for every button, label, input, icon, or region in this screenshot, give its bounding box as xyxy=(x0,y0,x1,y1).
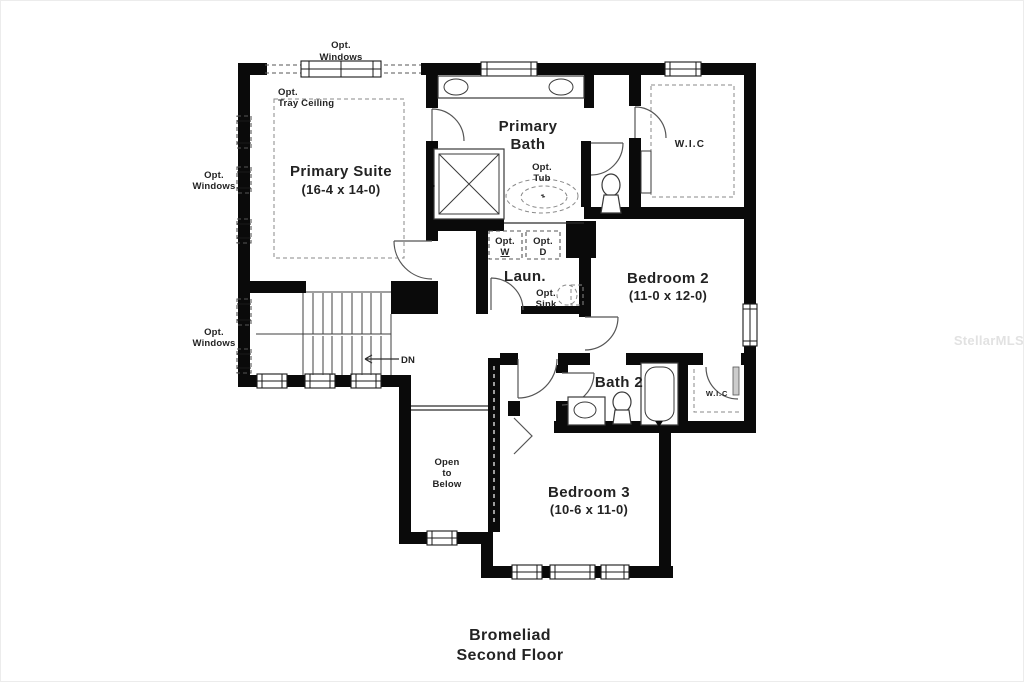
optional-tub xyxy=(506,179,578,213)
room-label-primary-bath: Primary xyxy=(499,118,558,135)
open-to-below-label: Below xyxy=(433,479,462,490)
opt-tub-label: Tub xyxy=(533,173,550,184)
window xyxy=(665,62,701,76)
watermark: StellarMLS xyxy=(954,333,1024,348)
shower xyxy=(427,149,504,219)
opt-tray-ceiling-label: Opt. xyxy=(278,87,298,98)
vanity-primary xyxy=(438,76,584,98)
linen-shelf xyxy=(641,151,651,193)
door-bedroom2 xyxy=(585,317,618,350)
open-to-below-label: Open xyxy=(434,457,459,468)
door-bedroom3 xyxy=(518,359,557,398)
room-label-wic2: W.I.C xyxy=(706,389,728,398)
bathtub xyxy=(641,363,678,427)
window xyxy=(512,565,542,579)
opt-dryer-label: Opt. xyxy=(533,236,553,247)
door-toilet-room xyxy=(591,143,623,175)
down-arrow xyxy=(365,355,399,363)
opt-tub-label: Opt. xyxy=(532,162,552,173)
toilet-primary xyxy=(601,174,621,213)
door-primary-suite xyxy=(394,241,432,279)
opt-windows-top-label: Opt. xyxy=(331,40,351,51)
plan-subtitle: Second Floor xyxy=(456,647,563,664)
optional-window-run-top xyxy=(265,61,421,77)
stairs-dn-label: DN xyxy=(401,355,415,366)
room-label-primary-bath: Bath xyxy=(511,136,546,153)
window xyxy=(257,374,287,388)
room-label-wic-primary: W.I.C xyxy=(675,139,705,150)
open-to-below-edge xyxy=(411,406,488,410)
window xyxy=(550,565,595,579)
room-label-laundry: Laun. xyxy=(504,268,546,285)
window xyxy=(743,304,757,346)
opt-windows-left-lower-label: Windows xyxy=(192,338,235,349)
plan-title: Bromeliad xyxy=(469,627,551,644)
vanity-bath2 xyxy=(568,397,605,425)
opt-windows-left-lower-label: Opt. xyxy=(204,327,224,338)
window xyxy=(305,374,335,388)
door-suite-to-bath xyxy=(432,109,464,141)
opt-tray-ceiling-label: Tray Ceiling xyxy=(278,98,334,109)
room-label-bedroom2: Bedroom 2 xyxy=(627,270,709,287)
toilet-bath2 xyxy=(613,392,631,424)
floor-plan-page: Opt. Windows Opt. Tray Ceiling Primary S… xyxy=(0,0,1024,682)
opt-washer-label: W xyxy=(500,247,509,258)
staircase xyxy=(256,292,399,375)
open-to-below-label: to xyxy=(442,468,451,479)
room-label-bedroom3: Bedroom 3 xyxy=(548,484,630,501)
room-dims-bedroom3: (10-6 x 11-0) xyxy=(550,502,628,517)
room-dims-primary-suite: (16-4 x 14-0) xyxy=(301,182,380,197)
window xyxy=(351,374,381,388)
door-bedroom3-bifold xyxy=(514,418,532,454)
room-label-primary-suite: Primary Suite xyxy=(290,163,392,180)
floor-plan-svg: Opt. Windows Opt. Tray Ceiling Primary S… xyxy=(1,1,1024,682)
opt-sink-label: Sink xyxy=(536,299,557,310)
opt-windows-left-upper-label: Windows xyxy=(192,181,235,192)
opt-windows-left-upper-label: Opt. xyxy=(204,170,224,181)
opt-dryer-label: D xyxy=(539,247,546,258)
window xyxy=(601,565,629,579)
window xyxy=(427,531,457,545)
opt-sink-label: Opt. xyxy=(536,288,556,299)
opt-washer-label: Opt. xyxy=(495,236,515,247)
room-label-bath2: Bath 2 xyxy=(595,374,643,391)
room-dims-bedroom2: (11-0 x 12-0) xyxy=(629,288,707,303)
window xyxy=(481,62,537,76)
opt-windows-top-label: Windows xyxy=(319,52,362,63)
